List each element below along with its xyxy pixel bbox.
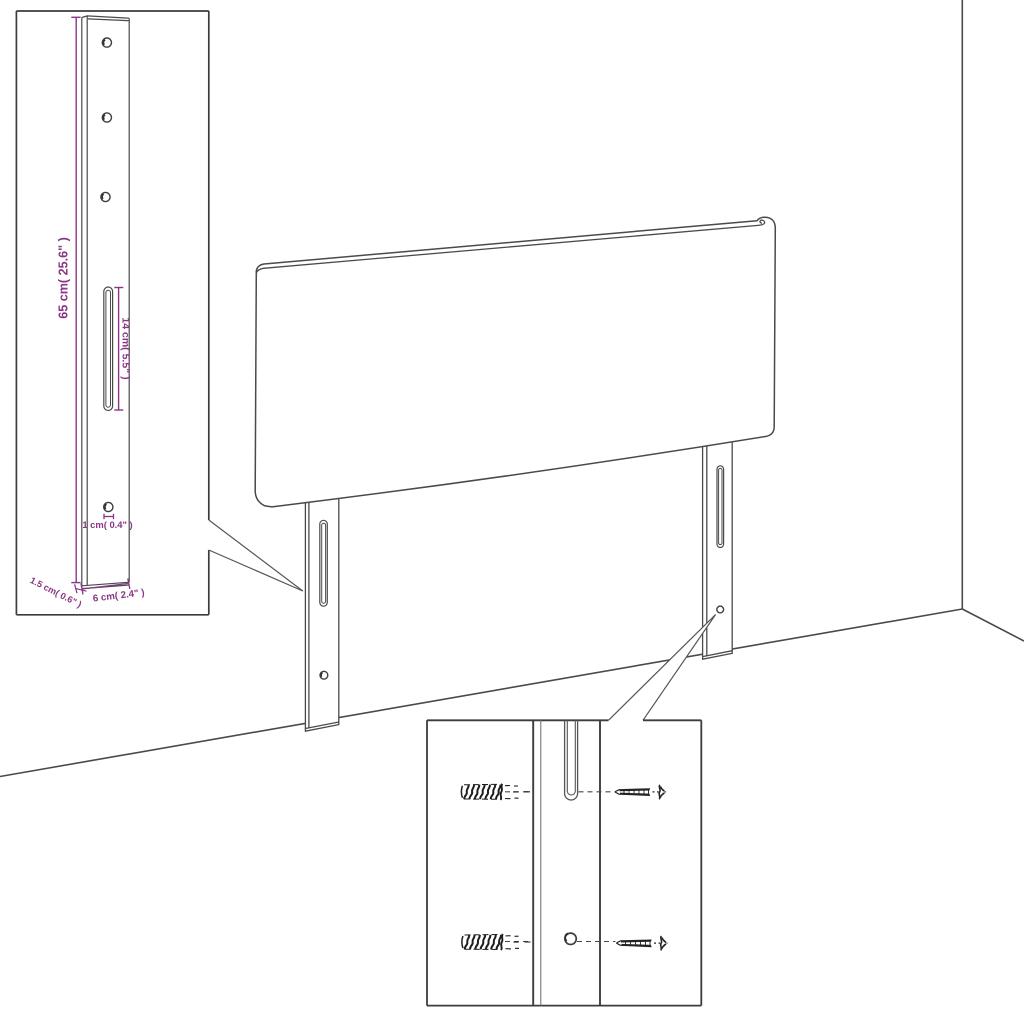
svg-text:14 cm( 5.5" ): 14 cm( 5.5" )	[120, 317, 132, 379]
svg-text:65 cm( 25.6" ): 65 cm( 25.6" )	[57, 237, 71, 319]
svg-text:1 cm( 0.4" ): 1 cm( 0.4" )	[82, 519, 132, 530]
